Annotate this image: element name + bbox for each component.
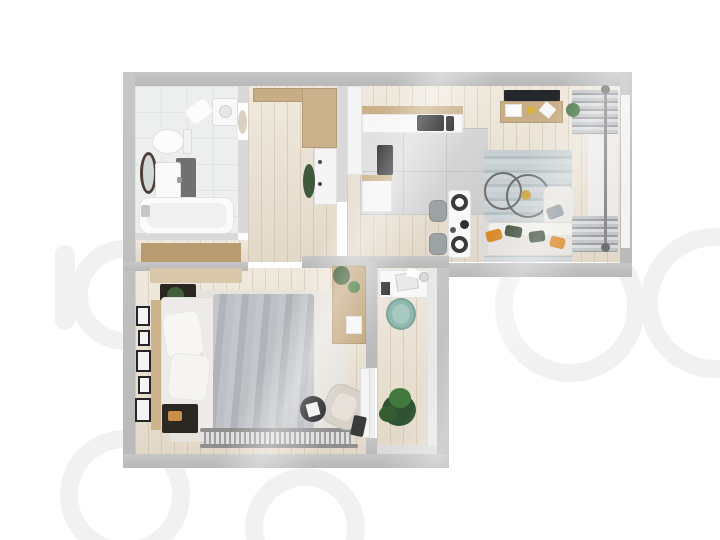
balcony-glazing-right [428, 268, 437, 445]
cooktop [417, 115, 444, 131]
hall-cabinet-knob-2 [318, 182, 322, 186]
wall-frame-1 [136, 306, 150, 326]
teapot [460, 220, 469, 229]
wall-balcony-left-upper [366, 262, 377, 368]
watermark-arc-4 [245, 468, 365, 540]
apartment-floor-plan [0, 0, 720, 540]
tv-screen [504, 90, 560, 101]
dining-chair-1 [429, 200, 447, 222]
wall-outer-right-lower [437, 263, 449, 468]
wall-bathroom-right-lower [238, 140, 248, 233]
balcony-plant-leaf-2 [389, 388, 411, 408]
wire-table-center-decor [521, 190, 531, 200]
wall-frame-3 [136, 350, 151, 372]
kitchen-lower-cabinet-top [362, 175, 392, 181]
bed-headboard [151, 300, 161, 430]
toilet-bowl [152, 129, 184, 154]
radiator-rail-top [200, 428, 358, 432]
radiator-rail-bottom [200, 444, 358, 448]
bed-blanket [213, 294, 314, 435]
wall-frame-4 [138, 376, 151, 394]
wardrobe-white-box [346, 316, 362, 334]
wall-bottom-upper-section [449, 263, 632, 277]
hall-green-mat [303, 164, 315, 198]
wall-frame-2 [138, 330, 150, 346]
bathroom-door-handle [238, 110, 247, 134]
fridge [377, 145, 393, 175]
hall-cabinet [314, 148, 337, 205]
wall-outer-bottom [123, 454, 449, 468]
dinner-plate-1 [451, 194, 468, 211]
dinner-plate-2 [451, 236, 468, 253]
sheer-curtain [588, 134, 618, 216]
kitchen-tall-cabinet [347, 86, 362, 175]
curtain-rod-finial-top [601, 85, 610, 94]
wall-outer-top [123, 72, 632, 86]
watermark-arc-3 [640, 228, 720, 378]
watermark-bar-1 [55, 245, 75, 330]
entry-doormat [141, 243, 241, 262]
curtain-rod [604, 89, 607, 247]
wardrobe-plant-2 [348, 281, 360, 293]
desk-tablet [381, 282, 390, 295]
hall-wardrobe-side [302, 88, 337, 148]
wardrobe-plant-1 [333, 266, 350, 285]
curtain-bottom [572, 216, 618, 252]
hall-cabinet-knob-1 [318, 160, 322, 164]
toilet-tank [183, 129, 192, 154]
console-decor-yellow [527, 106, 535, 114]
small-bowl [450, 227, 456, 233]
desk-lamp [419, 272, 429, 282]
wall-bathroom-right-upper [238, 86, 248, 103]
kitchen-spice-jars [446, 116, 454, 131]
bed-pillow-2 [167, 352, 212, 402]
balcony-glazing-bottom [377, 445, 437, 454]
curtain-rod-finial-bottom [601, 243, 610, 252]
sink-faucet [177, 177, 182, 183]
nightstand-candle-glow [168, 411, 182, 421]
bedroom-wall-panel [150, 268, 242, 283]
wall-frame-5 [135, 398, 151, 422]
balcony-plant-leaf-3 [379, 406, 397, 422]
window-glazing-right [621, 95, 630, 248]
wall-bathroom-bottom [135, 233, 238, 240]
wall-hallway-kitchen [337, 86, 347, 202]
sofa-pillow-green-2 [528, 230, 545, 243]
dining-chair-2 [429, 233, 447, 255]
balcony-chair-seat [392, 304, 410, 324]
bathtub-inner [147, 203, 227, 228]
window-plant [566, 103, 580, 117]
washing-machine-door [219, 105, 232, 118]
bathtub-faucet [141, 205, 150, 217]
radiator-fins [204, 431, 354, 445]
wall-balcony-left-lower [366, 438, 377, 454]
console-speaker [505, 104, 522, 117]
